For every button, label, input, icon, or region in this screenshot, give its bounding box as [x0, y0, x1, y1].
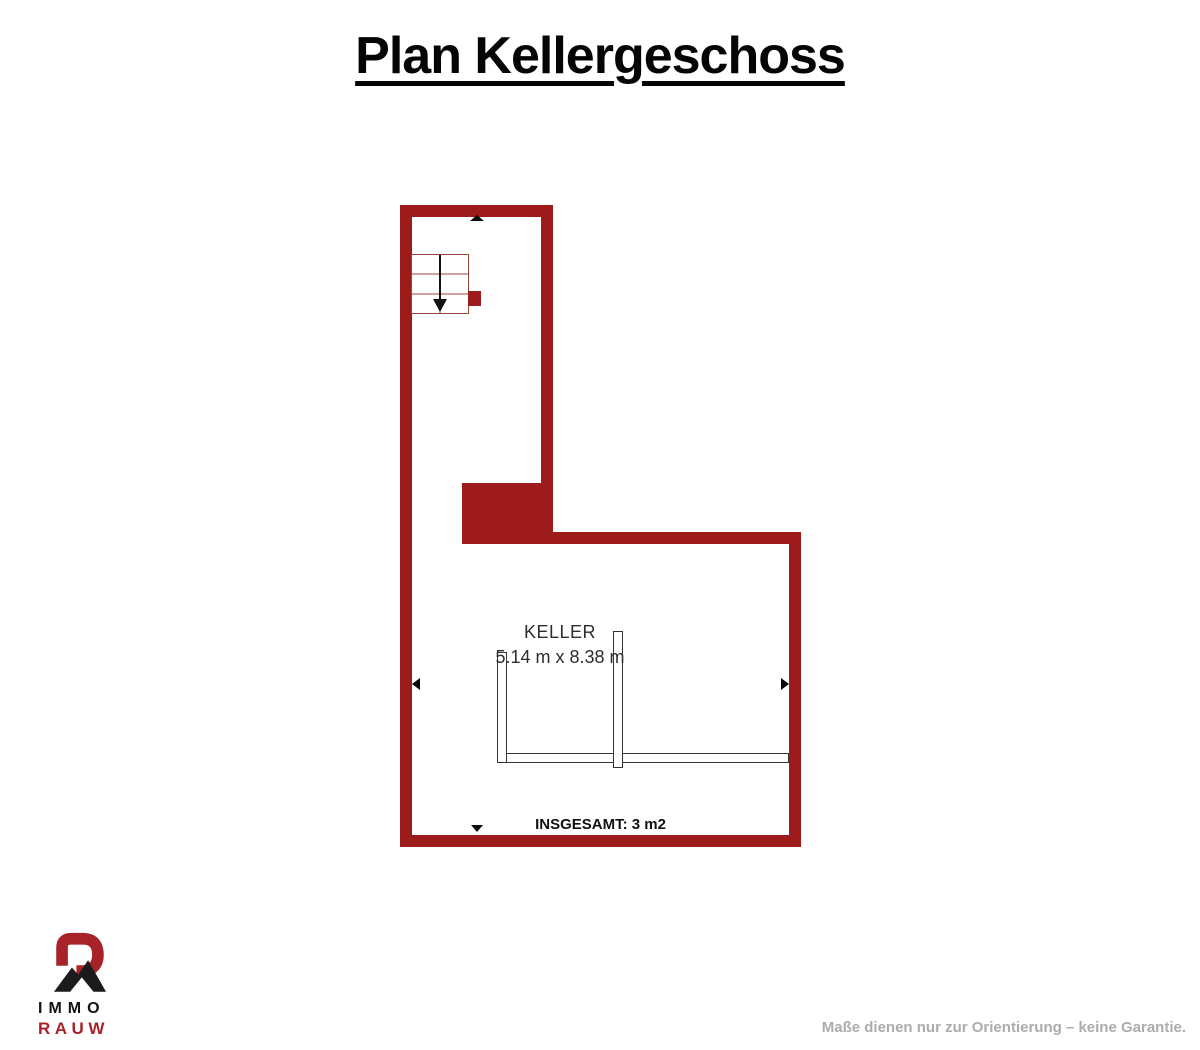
wall-bottom	[400, 835, 801, 847]
opening-marker-right-icon	[781, 678, 789, 690]
floorplan-page: Plan Kellergeschoss	[0, 0, 1200, 1050]
disclaimer-text: Maße dienen nur zur Orientierung – keine…	[822, 1019, 1186, 1036]
immo-rauw-logo-icon	[52, 928, 108, 998]
wall-corner-block	[462, 483, 553, 544]
room-name: KELLER	[450, 622, 670, 643]
opening-marker-top-icon	[470, 215, 484, 221]
opening-marker-left-icon	[412, 678, 420, 690]
stair-landing-block	[468, 291, 481, 306]
partition-wall-horizontal	[497, 753, 789, 763]
partition-wall-vertical-left	[497, 652, 507, 763]
logo-text-rauw: RAUW	[38, 1019, 109, 1039]
wall-right	[789, 532, 801, 847]
stair-direction-arrow-icon	[433, 255, 447, 312]
total-area-label: INSGESAMT: 3 m2	[400, 816, 801, 833]
wall-mid-top	[541, 532, 801, 544]
logo-text-immo: IMMO	[38, 1000, 106, 1018]
staircase-icon	[411, 254, 469, 314]
room-dimensions: 5.14 m x 8.38 m	[450, 647, 670, 668]
page-title: Plan Kellergeschoss	[0, 26, 1200, 86]
